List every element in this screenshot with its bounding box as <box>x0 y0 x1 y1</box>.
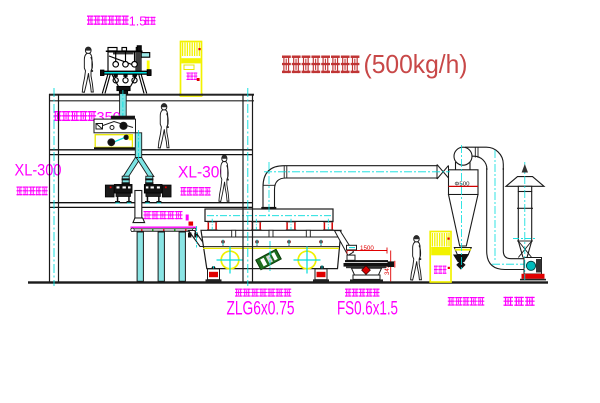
svg-text:1.5: 1.5 <box>129 15 146 29</box>
svg-text:(500kg/h): (500kg/h) <box>364 49 468 79</box>
svg-text:FS0.6x1.5: FS0.6x1.5 <box>337 299 398 320</box>
svg-text:1500: 1500 <box>360 245 374 252</box>
svg-text:ZLG6x0.75: ZLG6x0.75 <box>227 299 295 320</box>
